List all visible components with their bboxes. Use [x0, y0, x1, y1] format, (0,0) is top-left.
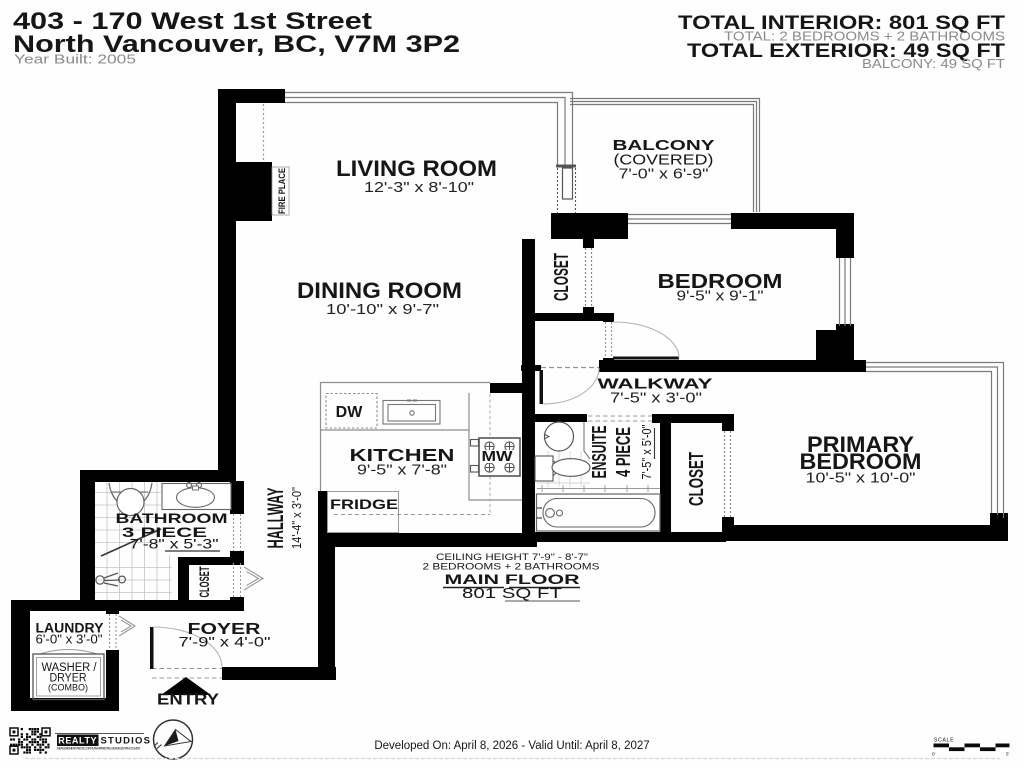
svg-text:DINING ROOM: DINING ROOM [297, 278, 462, 303]
svg-text:FRIDGE: FRIDGE [330, 496, 398, 512]
svg-text:10'-5" x 10'-0": 10'-5" x 10'-0" [806, 471, 916, 487]
svg-text:7'-8" x 5'-3": 7'-8" x 5'-3" [130, 537, 219, 552]
svg-text:CLOSET: CLOSET [551, 253, 573, 301]
svg-text:HALLWAY: HALLWAY [263, 487, 288, 548]
svg-text:REALTY: REALTY [58, 735, 97, 745]
svg-text:7'-5" x 3'-0": 7'-5" x 3'-0" [610, 391, 702, 407]
svg-text:CLOSET: CLOSET [197, 566, 212, 597]
svg-text:12'-3" x 8'-10": 12'-3" x 8'-10" [364, 180, 474, 196]
svg-text:MW: MW [482, 448, 514, 465]
svg-text:9'-5" x 7'-8": 9'-5" x 7'-8" [357, 463, 447, 479]
svg-text:0': 0' [932, 752, 936, 757]
svg-text:FIRE PLACE: FIRE PLACE [277, 168, 287, 214]
svg-text:Year Built: 2005: Year Built: 2005 [14, 52, 136, 67]
svg-text:LIVING ROOM: LIVING ROOM [336, 156, 497, 181]
svg-text:ENTRY: ENTRY [157, 692, 220, 709]
svg-text:6'-0" x 3'-0": 6'-0" x 3'-0" [36, 632, 103, 647]
svg-text:CLOSET: CLOSET [686, 452, 708, 506]
svg-text:(COMBO): (COMBO) [48, 683, 88, 694]
svg-text:MEASUREMENT AND FLOOR PLAN MAR: MEASUREMENT AND FLOOR PLAN MARKETING SER… [57, 747, 141, 751]
svg-text:ENSUITE: ENSUITE [589, 426, 611, 479]
svg-text:5': 5' [1006, 752, 1010, 757]
svg-text:801 SQ FT: 801 SQ FT [462, 585, 562, 602]
svg-text:Developed On: April 8, 2026 -: Developed On: April 8, 2026 - Valid Unti… [374, 740, 649, 752]
svg-text:14'-4" x 3'-0": 14'-4" x 3'-0" [290, 487, 304, 549]
svg-text:CEILING HEIGHT 7'-9" - 8'-7": CEILING HEIGHT 7'-9" - 8'-7" [436, 552, 588, 562]
svg-text:DW: DW [336, 404, 364, 421]
svg-text:10'-10" x 9'-7": 10'-10" x 9'-7" [326, 302, 439, 318]
svg-text:SCALE: SCALE [934, 738, 955, 744]
svg-text:STUDIOS: STUDIOS [101, 736, 152, 747]
svg-text:4 PIECE: 4 PIECE [613, 427, 635, 477]
svg-text:7'-5" x 5'-0": 7'-5" x 5'-0" [639, 424, 654, 479]
svg-text:2 BEDROOMS + 2 BATHROOMS: 2 BEDROOMS + 2 BATHROOMS [423, 562, 600, 573]
svg-text:7'-0" x 6'-9": 7'-0" x 6'-9" [619, 167, 709, 183]
svg-text:BALCONY: 49 SQ FT: BALCONY: 49 SQ FT [862, 57, 1005, 71]
svg-text:7'-9" x 4'-0": 7'-9" x 4'-0" [179, 634, 271, 650]
svg-text:9'-5" x 9'-1": 9'-5" x 9'-1" [677, 289, 764, 305]
